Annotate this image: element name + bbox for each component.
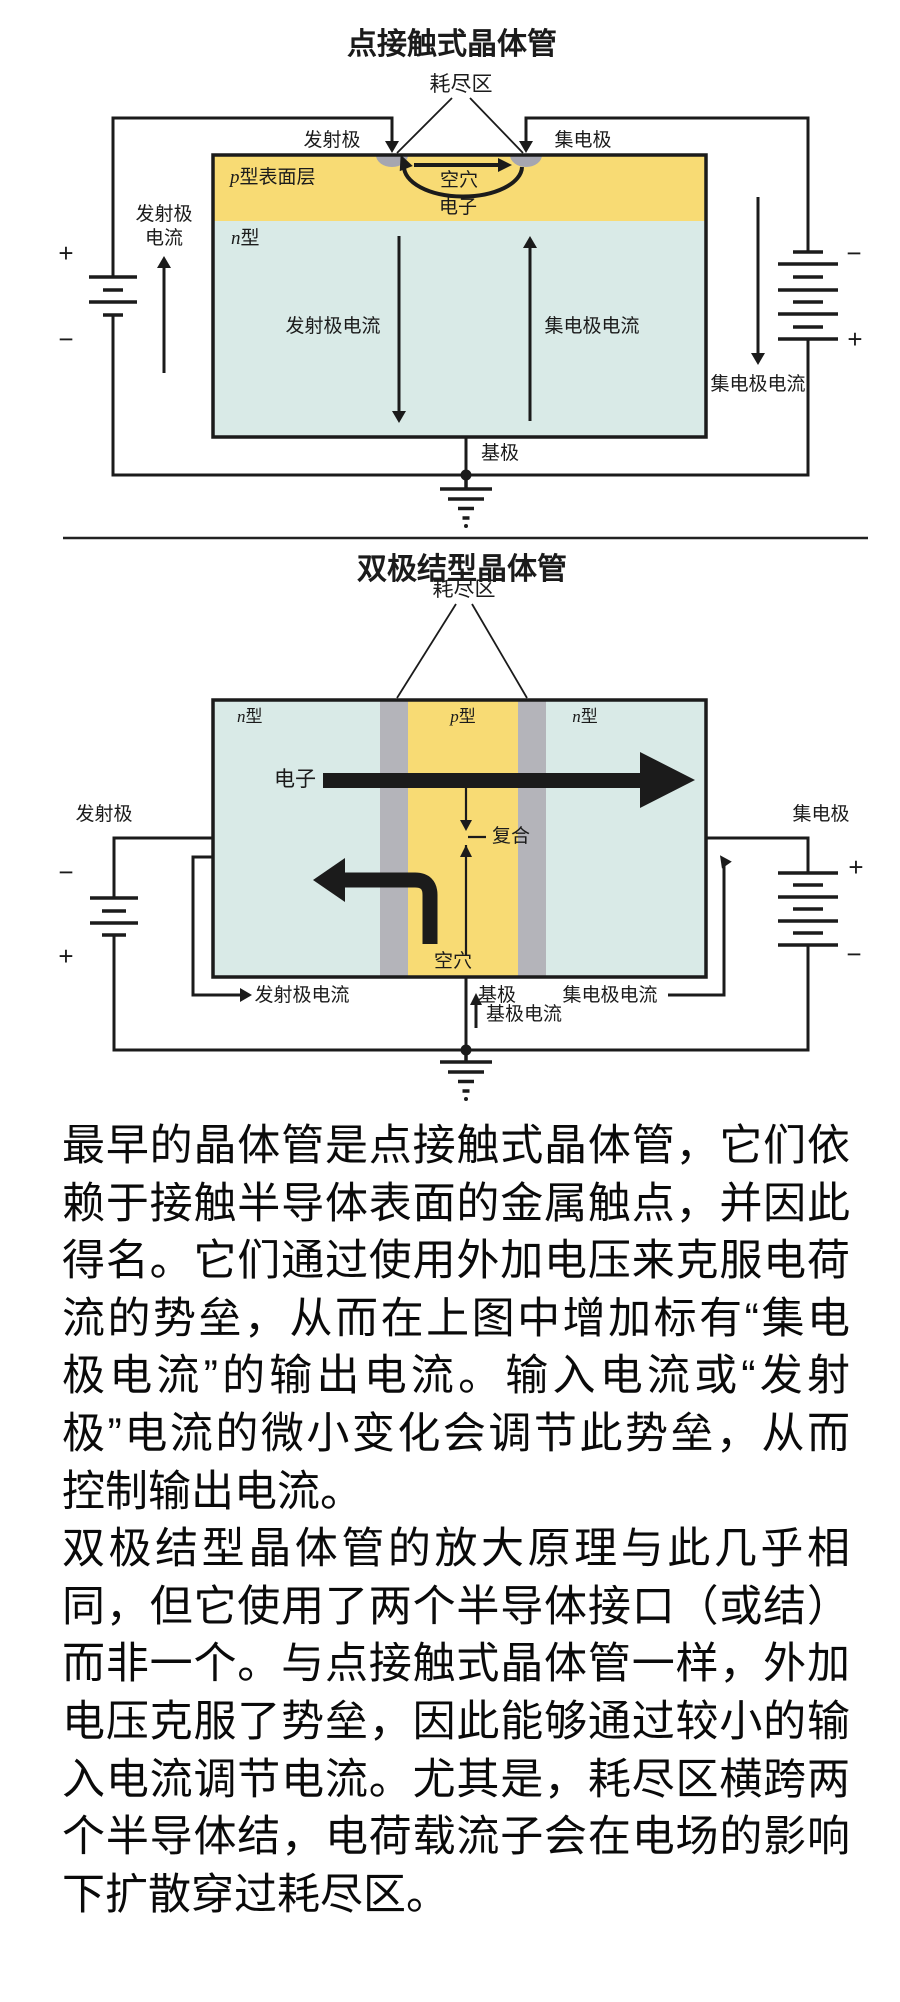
figure1-battery-left-plus-sign: + [58, 239, 73, 269]
figure1-depletion-label: 耗尽区 [430, 73, 493, 97]
depletion-strip-left [380, 700, 408, 977]
figure1-collector-current-side-label: 集电极电流 [710, 374, 805, 396]
article-line: 控制输出电流。 [62, 1464, 850, 1522]
article-line: 双极结型晶体管的放大原理与此几乎相 [62, 1521, 850, 1579]
figure2-battery-right-plus-sign: + [848, 853, 863, 883]
figure1-battery-left-icon [89, 277, 137, 315]
figure2-battery-left-minus-sign: − [58, 858, 73, 888]
figure1-emitter-current-side-label-line2: 电流 [145, 228, 183, 250]
figure2-ground-icon [440, 1045, 492, 1102]
figure2-battery-left-plus-sign: + [58, 942, 73, 972]
figure2-collector-label: 集电极 [792, 804, 849, 826]
figure1-emitter-current-side-label-line1: 发射极 [135, 204, 192, 226]
article-line: 个半导体结，电荷载流子会在电场的影响 [62, 1809, 850, 1867]
figure1-battery-right-minus-sign: − [846, 239, 861, 269]
figure1-title: 点接触式晶体管 [347, 28, 557, 63]
figure2-battery-right-minus-sign: − [846, 940, 861, 970]
article-line: 而非一个。与点接触式晶体管一样，外加 [62, 1636, 850, 1694]
figure1-ground-icon [440, 470, 492, 529]
figure2-electrons-label: 电子 [274, 768, 316, 792]
article-line: 极”电流的微小变化会调节此势垒，从而 [62, 1406, 850, 1464]
figure2-emitter-label: 发射极 [75, 804, 132, 826]
figure2-base-current-label: 基极电流 [486, 1004, 562, 1026]
article-line: 下扩散穿过耗尽区。 [62, 1867, 850, 1925]
figure1-base-label: 基极 [481, 443, 519, 465]
figure1-p-layer-label: p型表面层 [230, 167, 316, 189]
figure1-battery-left-minus-sign: − [58, 325, 73, 355]
figure2-battery-left-icon [90, 898, 138, 935]
figure2-semiconductor-block [213, 700, 706, 977]
figure2-battery-right-icon [778, 873, 838, 945]
article-text: 最早的晶体管是点接触式晶体管，它们依 赖于接触半导体表面的金属触点，并因此 得名… [62, 1118, 850, 1924]
figure1-emitter-current-inner-label: 发射极电流 [285, 316, 380, 338]
article-line: 入电流调节电流。尤其是，耗尽区横跨两 [62, 1752, 850, 1810]
figure2-n-left-label: n型 [237, 707, 263, 727]
figure2-depletion-label: 耗尽区 [433, 578, 496, 602]
figure1-battery-right-plus-sign: + [847, 325, 862, 355]
article-line: 同，但它使用了两个半导体接口（或结） [62, 1579, 850, 1637]
figure1-electrons-label: 电子 [439, 197, 477, 219]
figure2-p-mid-label: p型 [450, 707, 476, 727]
page: 点接触式晶体管 耗尽区 发射极 集电极 p型表面层 n型 空穴 电子 发射极电流… [0, 0, 900, 2002]
figure1-collector-label: 集电极 [554, 130, 611, 152]
article-line: 得名。它们通过使用外加电压来克服电荷 [62, 1233, 850, 1291]
figure1-holes-label: 空穴 [440, 170, 478, 192]
figure2-emitter-current-label: 发射极电流 [254, 985, 349, 1007]
figure2-recombination-label: 复合 [492, 826, 530, 848]
article-line: 流的势垒，从而在上图中增加标有“集电 [62, 1291, 850, 1349]
figure1-depletion-leader-lines [397, 98, 523, 153]
figure1-emitter-label: 发射极 [303, 130, 360, 152]
figure1-collector-current-inner-label: 集电极电流 [544, 316, 639, 338]
article-line: 极电流”的输出电流。输入电流或“发射 [62, 1348, 850, 1406]
figure1-battery-right-icon [778, 252, 838, 339]
article-line: 最早的晶体管是点接触式晶体管，它们依 [62, 1118, 850, 1176]
figure2-depletion-leader-lines [397, 604, 527, 698]
figure2-holes-label: 空穴 [434, 951, 472, 973]
article-line: 赖于接触半导体表面的金属触点，并因此 [62, 1176, 850, 1234]
article-line: 电压克服了势垒，因此能够通过较小的输 [62, 1694, 850, 1752]
figure2-n-right-label: n型 [572, 707, 598, 727]
figure1-n-layer-label: n型 [231, 228, 260, 250]
figure2-collector-current-label: 集电极电流 [562, 985, 657, 1007]
